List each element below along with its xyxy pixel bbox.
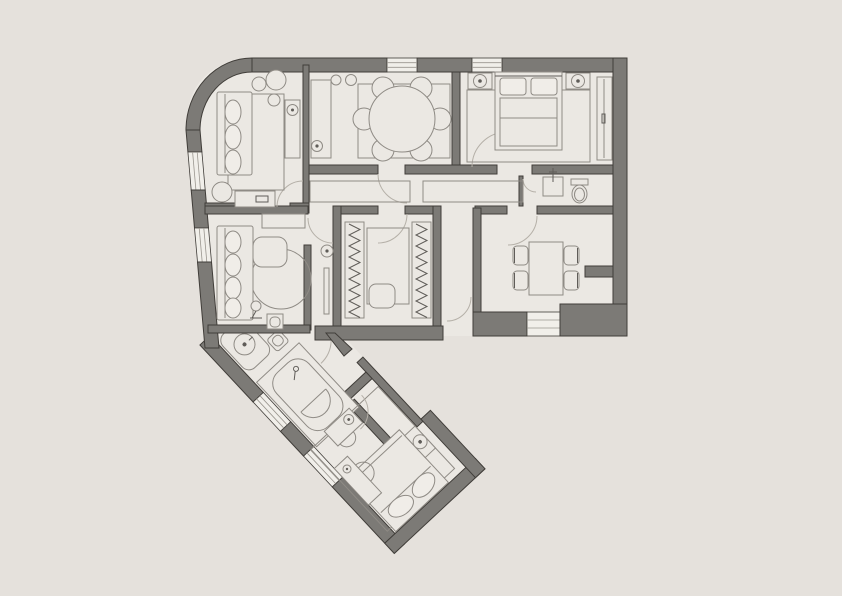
- dining-chair: [513, 271, 528, 290]
- media-cabinet: [235, 191, 275, 207]
- sofa-cushion: [225, 298, 241, 318]
- north-window-1: [387, 58, 417, 72]
- west-window-1: [188, 152, 205, 190]
- dining-window: [527, 312, 560, 336]
- west-window-2: [195, 228, 212, 262]
- nightstand-lamp-dot: [576, 79, 580, 83]
- dining-chair: [564, 271, 579, 290]
- closet-west-wall: [333, 206, 341, 340]
- sofa-cushion: [225, 100, 241, 124]
- plant: [252, 77, 266, 91]
- sideboard: [262, 214, 305, 228]
- bedroom-west-wall: [452, 72, 460, 168]
- floor-lamp-shade: [251, 301, 261, 311]
- dining-table: [529, 242, 563, 295]
- dining-corner-wall: [560, 304, 627, 336]
- pendant-lamp: [331, 75, 341, 85]
- corridor-south-wall: [537, 206, 613, 214]
- pillow: [500, 78, 526, 95]
- west-wall: [186, 130, 202, 152]
- pendant-lamp: [346, 75, 357, 86]
- north-wall: [417, 58, 472, 72]
- ottoman: [369, 284, 395, 308]
- sofa-cushion: [225, 254, 241, 276]
- pillow: [531, 78, 557, 95]
- dining-chair: [513, 246, 528, 265]
- north-window-2: [472, 58, 502, 72]
- console-lamp-dot: [291, 109, 294, 112]
- hall-lamp-dot: [325, 249, 328, 252]
- dining-wall-notch: [585, 266, 613, 277]
- sofa-cushion: [225, 277, 241, 299]
- north-wall: [502, 58, 627, 72]
- cabinet-decor-dot: [315, 144, 318, 147]
- sofa-cushion: [225, 231, 241, 253]
- north-wall: [252, 58, 387, 72]
- corridor-north-wall: [309, 165, 378, 174]
- plant: [266, 70, 286, 90]
- sofa-cushion: [225, 125, 241, 149]
- toilet: [571, 179, 588, 203]
- coffee-table: [253, 237, 287, 267]
- east-wall: [613, 58, 627, 336]
- dining-south-wall: [473, 312, 527, 336]
- floor-plant: [212, 182, 232, 202]
- dining-chair: [564, 246, 579, 265]
- floor-plan-page: [0, 0, 842, 596]
- nightstand-lamp-dot: [478, 79, 482, 83]
- plant: [268, 94, 280, 106]
- round-dining-table: [369, 86, 435, 152]
- closet-east-wall: [433, 206, 441, 328]
- floor-plan-svg: [0, 0, 842, 596]
- lounge-partition-wall: [303, 65, 309, 205]
- toilet-tank: [571, 179, 588, 185]
- sitting-south-wall: [208, 325, 310, 333]
- corridor-north-wall: [532, 165, 613, 174]
- corridor-north-wall: [405, 165, 497, 174]
- sofa-cushion: [225, 150, 241, 174]
